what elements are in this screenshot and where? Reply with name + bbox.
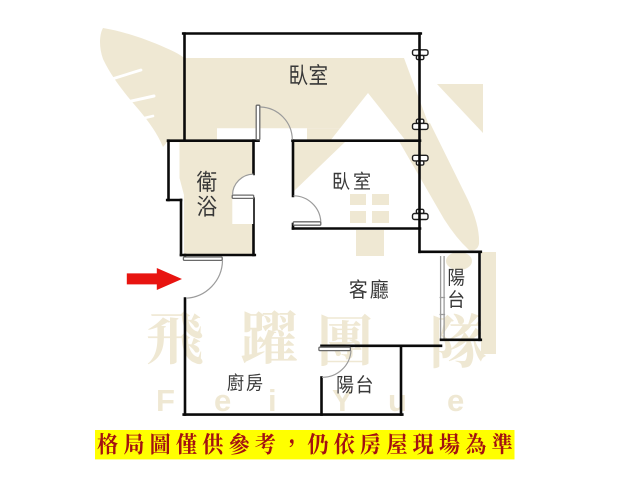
svg-text:u: u (388, 383, 407, 418)
svg-text:e: e (447, 383, 464, 418)
svg-text:F: F (156, 383, 175, 418)
svg-text:i: i (268, 383, 277, 418)
